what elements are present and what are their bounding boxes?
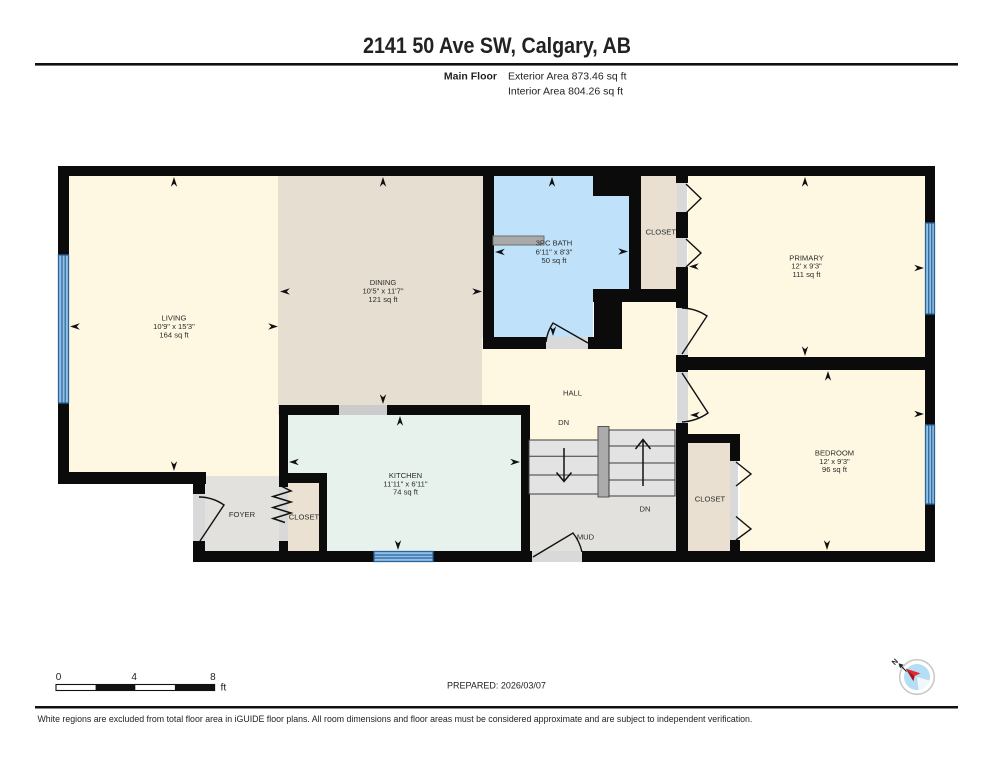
svg-text:111 sq ft: 111 sq ft	[792, 270, 821, 279]
svg-text:CLOSET: CLOSET	[646, 228, 677, 237]
svg-text:DN: DN	[558, 418, 569, 427]
svg-text:121 sq ft: 121 sq ft	[368, 295, 398, 304]
svg-text:Main Floor: Main Floor	[444, 71, 497, 83]
svg-text:CLOSET: CLOSET	[289, 513, 320, 522]
svg-text:96 sq ft: 96 sq ft	[822, 465, 848, 474]
svg-text:2141 50 Ave SW, Calgary, AB: 2141 50 Ave SW, Calgary, AB	[363, 33, 631, 58]
svg-text:CLOSET: CLOSET	[695, 495, 726, 504]
svg-text:Exterior Area 873.46 sq ft: Exterior Area 873.46 sq ft	[508, 71, 627, 83]
svg-text:ft: ft	[221, 682, 227, 694]
svg-text:8: 8	[210, 672, 216, 683]
svg-text:FOYER: FOYER	[229, 510, 256, 519]
svg-text:164 sq ft: 164 sq ft	[159, 330, 189, 339]
svg-text:DN: DN	[640, 505, 651, 514]
svg-text:PREPARED: 2026/03/07: PREPARED: 2026/03/07	[447, 681, 546, 691]
svg-text:White regions are excluded fro: White regions are excluded from total fl…	[38, 714, 753, 724]
svg-text:74 sq ft: 74 sq ft	[393, 488, 419, 497]
svg-text:Interior Area 804.26 sq ft: Interior Area 804.26 sq ft	[508, 86, 623, 98]
svg-text:MUD: MUD	[577, 533, 595, 542]
svg-text:4: 4	[131, 672, 137, 683]
svg-text:HALL: HALL	[563, 389, 582, 398]
svg-text:0: 0	[56, 672, 62, 683]
svg-text:3PC BATH: 3PC BATH	[536, 239, 573, 248]
svg-text:50 sq ft: 50 sq ft	[542, 256, 568, 265]
